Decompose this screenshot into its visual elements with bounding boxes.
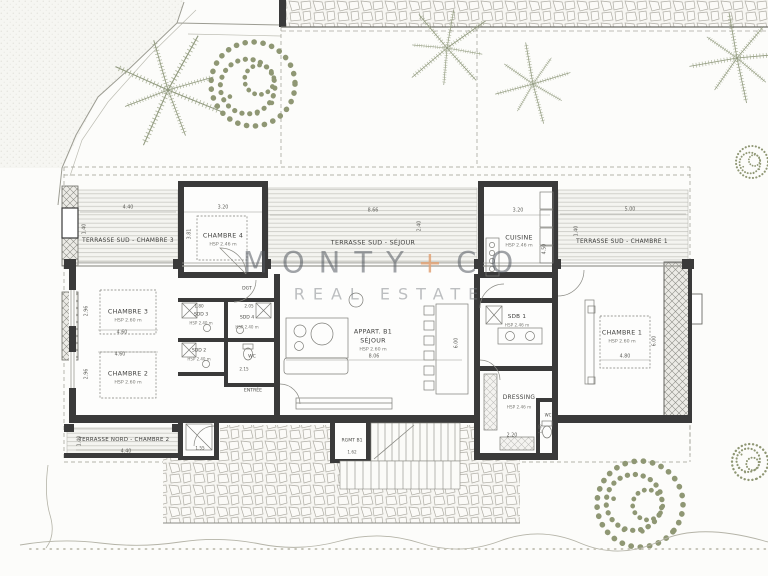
floor-plan-canvas: MONTY+CO REAL ESTATE JARDIN B1 TERRASSE …: [0, 0, 768, 576]
plan-drawing: [0, 0, 768, 576]
